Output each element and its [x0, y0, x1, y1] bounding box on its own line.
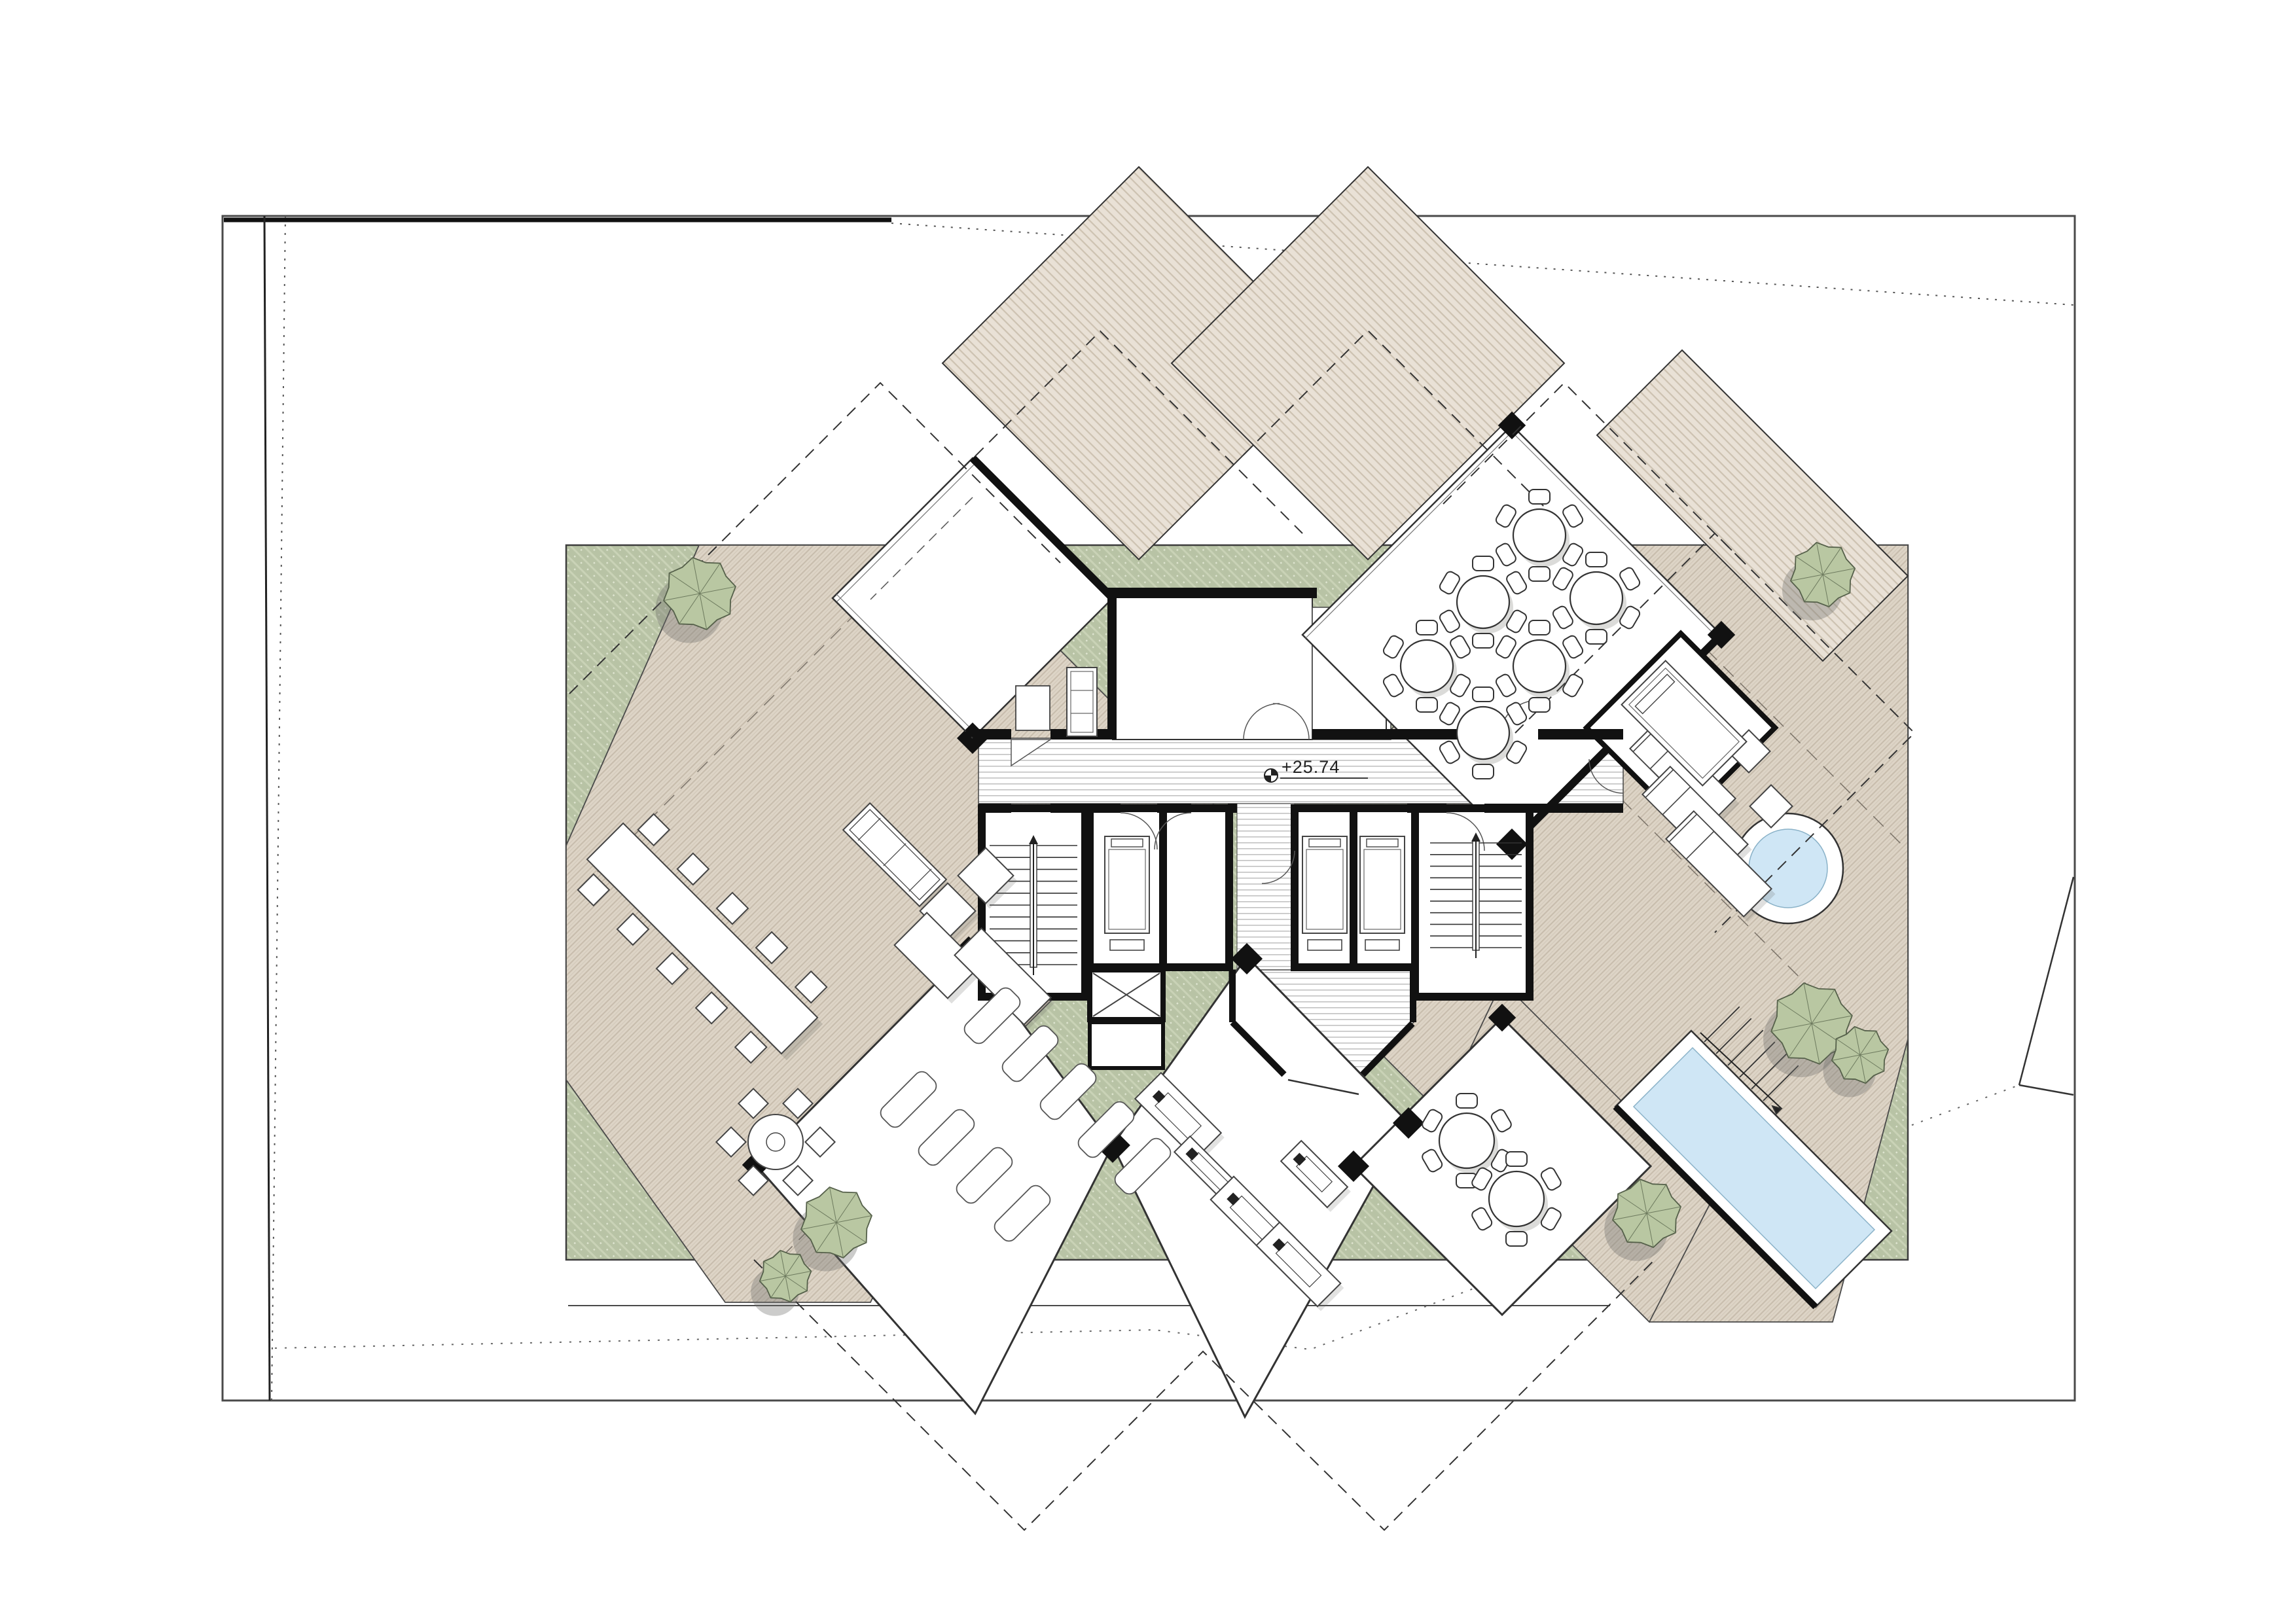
- floor-plan-sheet: +25.74: [0, 0, 2296, 1623]
- wall-living-left: [1107, 588, 1117, 740]
- property-line-right-diagonal: [2019, 877, 2073, 1085]
- bed: [1302, 836, 1347, 950]
- floor-plan-drawing: +25.74: [0, 0, 2296, 1623]
- room-store: [1090, 1022, 1163, 1068]
- property-line-left: [264, 216, 270, 1400]
- setback-line-left-dotted: [272, 216, 285, 1400]
- bed: [1360, 836, 1405, 950]
- wall-living-top: [1107, 588, 1317, 598]
- room-living: [1113, 592, 1312, 740]
- level-annotation: +25.74: [1282, 757, 1340, 777]
- bed: [1105, 836, 1149, 950]
- room-bath-1: [1163, 808, 1229, 967]
- property-line-right-short: [2019, 1085, 2073, 1095]
